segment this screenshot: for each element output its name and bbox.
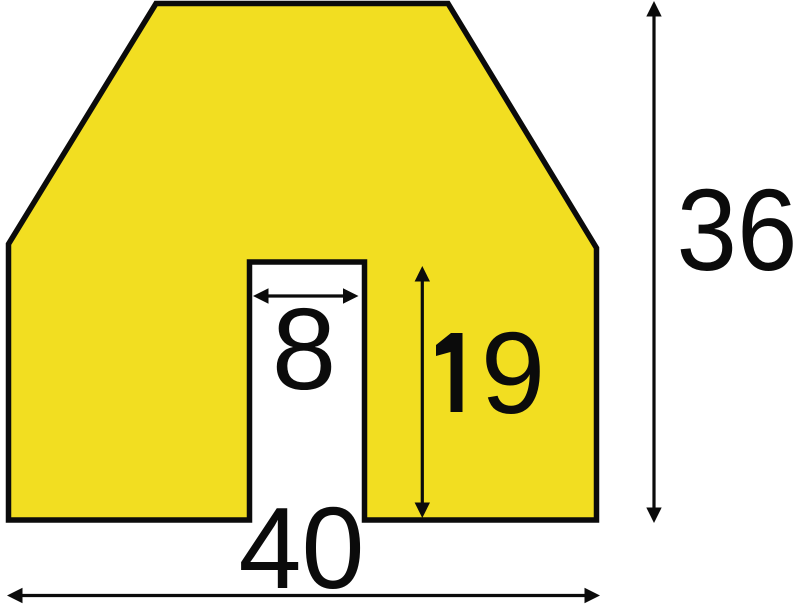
svg-text:36: 36 xyxy=(677,165,798,295)
svg-text:8: 8 xyxy=(272,284,337,414)
svg-text:9: 9 xyxy=(481,308,546,438)
svg-text:40: 40 xyxy=(239,483,365,604)
